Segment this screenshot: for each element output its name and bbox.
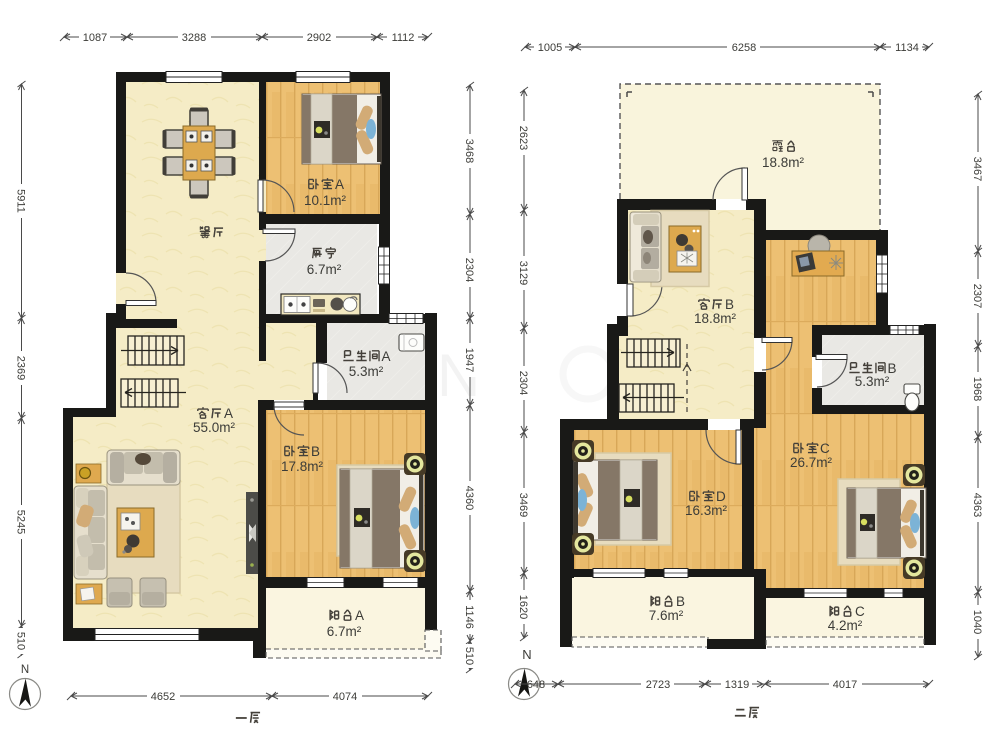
svg-text:4360: 4360 [463,486,475,510]
svg-text:6.7m²: 6.7m² [307,262,342,277]
svg-text:3469: 3469 [517,493,529,517]
svg-text:26.7m²: 26.7m² [790,455,833,470]
svg-text:A: A [382,349,391,364]
svg-text:4363: 4363 [971,493,983,517]
svg-text:A: A [335,177,344,192]
svg-text:2304: 2304 [463,258,475,282]
svg-text:1146: 1146 [463,605,475,629]
svg-text:A: A [355,608,364,623]
svg-text:17.8m²: 17.8m² [281,459,324,474]
svg-text:N: N [522,647,531,662]
svg-text:5.3m²: 5.3m² [349,364,384,379]
svg-text:18.8m²: 18.8m² [762,155,805,170]
svg-text:6.7m²: 6.7m² [327,624,362,639]
svg-text:2723: 2723 [646,679,670,691]
svg-text:1005: 1005 [538,42,562,54]
svg-text:1040: 1040 [971,610,983,634]
svg-text:1134: 1134 [895,42,919,54]
svg-text:510: 510 [15,632,27,650]
svg-text:3467: 3467 [971,157,983,181]
svg-text:7.6m²: 7.6m² [649,608,684,623]
svg-text:510: 510 [463,647,475,665]
svg-text:3288: 3288 [182,32,206,44]
svg-text:B: B [676,594,685,609]
svg-text:B: B [725,297,734,312]
svg-text:1947: 1947 [463,348,475,372]
svg-text:6258: 6258 [732,42,756,54]
svg-text:2304: 2304 [517,371,529,395]
svg-text:10.1m²: 10.1m² [304,193,347,208]
svg-text:4074: 4074 [333,691,357,703]
svg-text:1112: 1112 [392,32,415,44]
svg-text:3468: 3468 [463,139,475,163]
svg-text:2902: 2902 [307,32,331,44]
svg-text:18.8m²: 18.8m² [694,311,737,326]
svg-text:4652: 4652 [151,691,175,703]
svg-text:D: D [716,489,726,504]
svg-text:1319: 1319 [725,679,749,691]
svg-text:5.3m²: 5.3m² [855,374,890,389]
svg-text:N: N [21,664,29,676]
svg-text:1968: 1968 [971,377,983,401]
svg-text:3129: 3129 [517,261,529,285]
svg-text:16.3m²: 16.3m² [685,503,728,518]
svg-text:B: B [311,444,320,459]
svg-text:4.2m²: 4.2m² [828,618,863,633]
svg-text:5245: 5245 [15,510,27,534]
svg-text:C: C [855,604,865,619]
svg-text:2623: 2623 [517,126,529,150]
svg-text:648: 648 [527,679,545,691]
svg-text:1087: 1087 [83,32,107,44]
svg-text:1620: 1620 [517,595,529,619]
svg-text:5911: 5911 [15,189,27,213]
svg-text:C: C [820,441,830,456]
svg-text:4017: 4017 [833,679,857,691]
svg-text:55.0m²: 55.0m² [193,420,236,435]
svg-text:2369: 2369 [15,356,27,380]
svg-text:A: A [224,406,233,421]
svg-text:2307: 2307 [971,284,983,308]
